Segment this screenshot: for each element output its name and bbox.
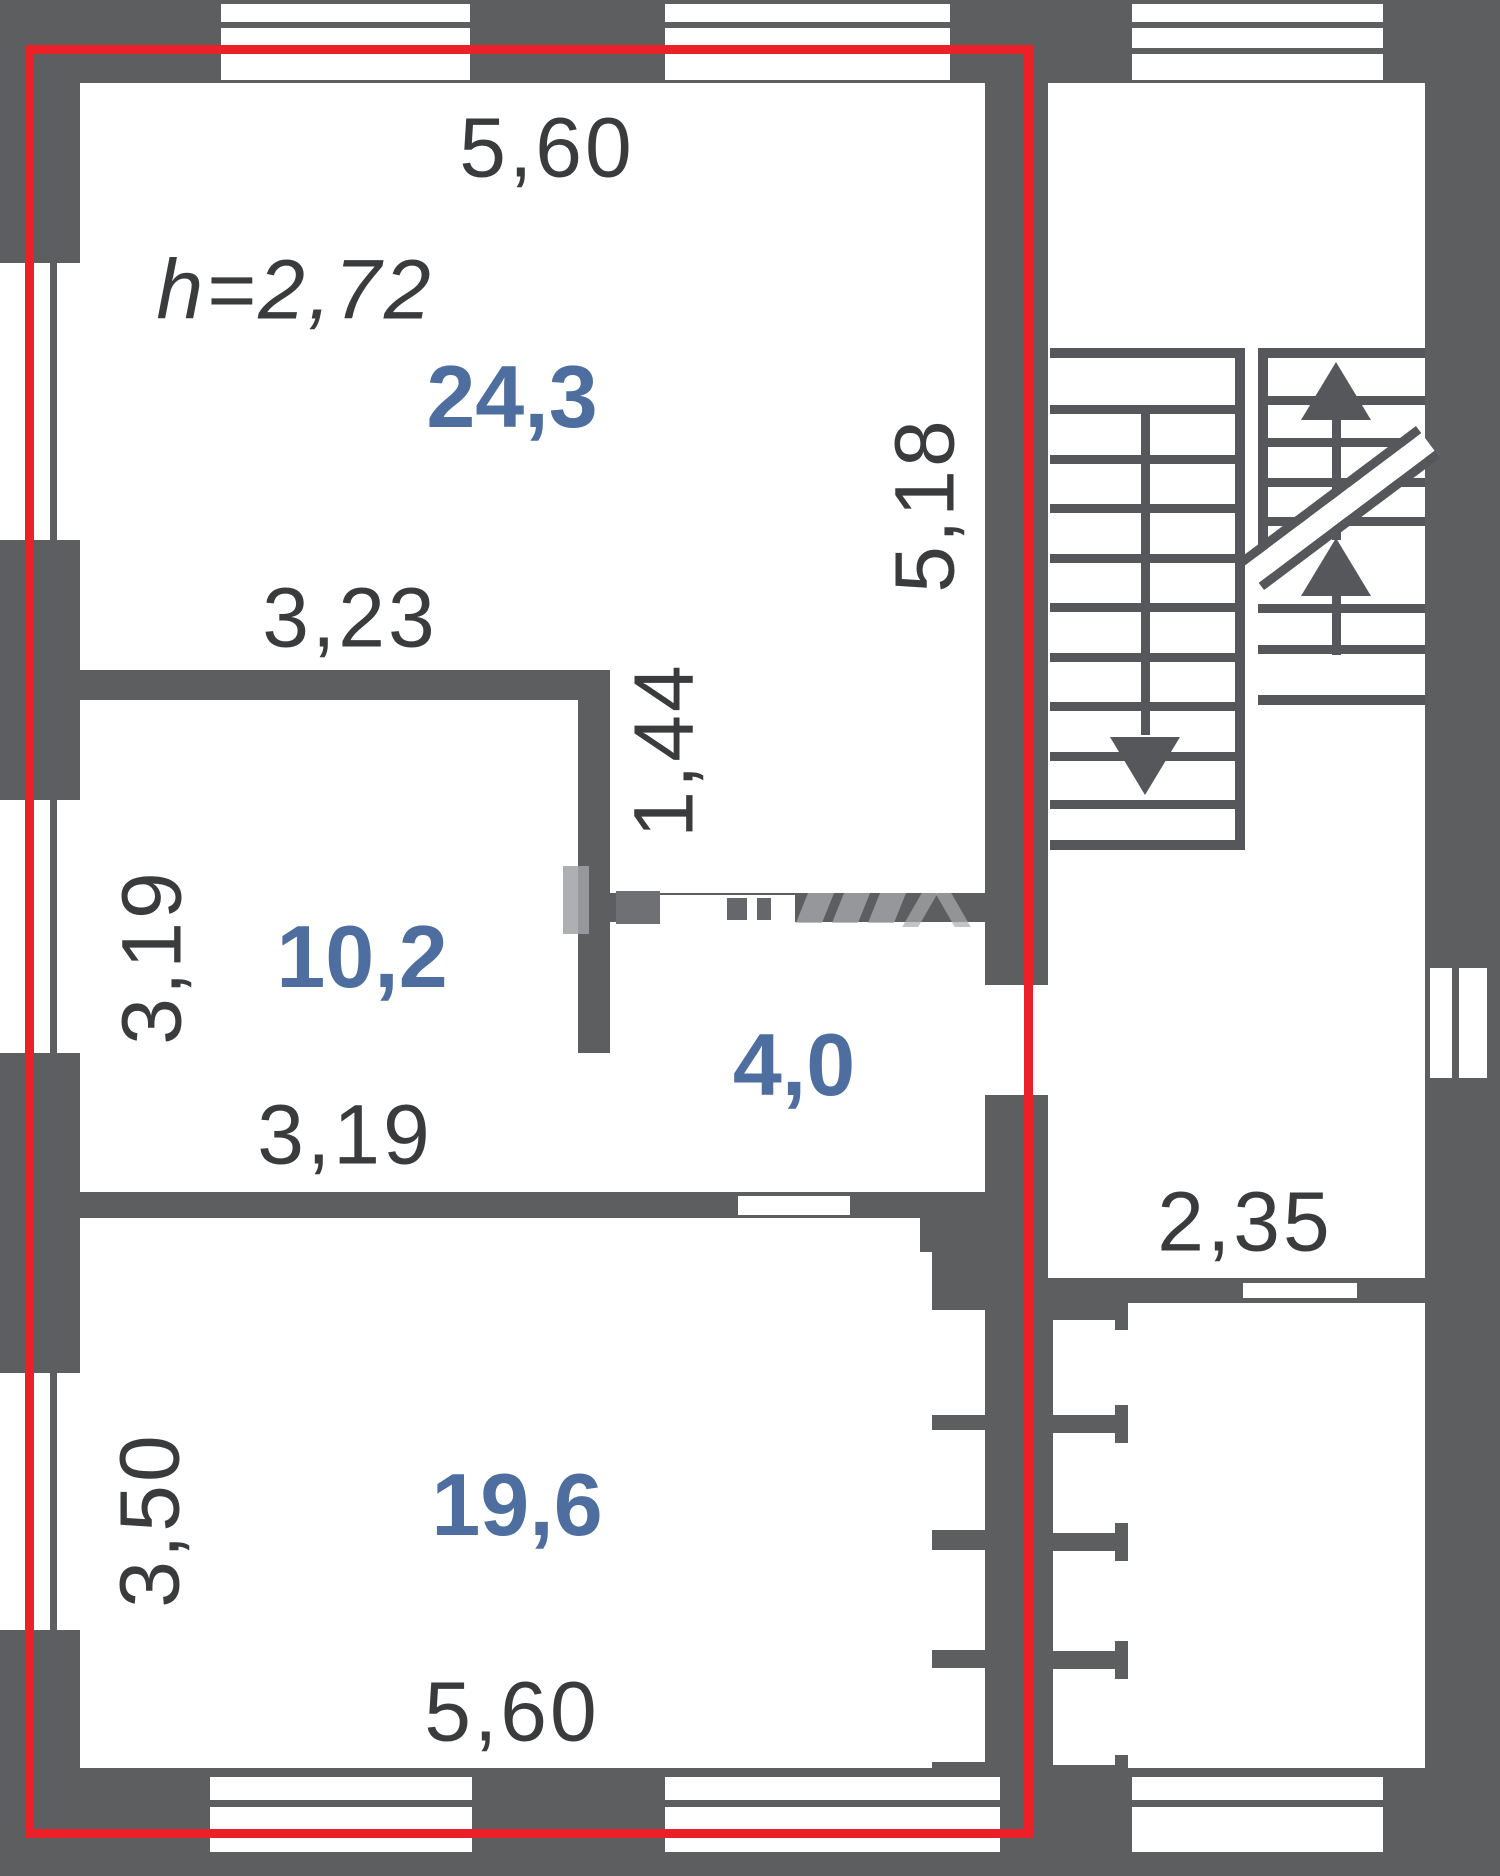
- dim-bottom-width: 5,60: [424, 1664, 600, 1761]
- room-area-living: 24,3: [426, 346, 597, 448]
- window-top-1-frame: [221, 22, 470, 28]
- stair-flight-up-top: [1258, 348, 1425, 358]
- balcony-window-right-4: [1053, 1669, 1115, 1765]
- down-arrow-icon: [1110, 737, 1180, 795]
- dim-bedroom-bottom-width: 3,19: [257, 1087, 433, 1184]
- dim-hall-wall: 1,44: [616, 662, 713, 838]
- dim-bedroom-left-height: 3,19: [104, 869, 201, 1045]
- partition-glass-3: [1115, 1561, 1128, 1641]
- stair-up-arrow-shaft-2: [1332, 594, 1341, 655]
- dim-living-height: 5,18: [877, 417, 974, 593]
- stair-flight-down-top: [1050, 348, 1245, 358]
- door-corridor-room: [1243, 1283, 1357, 1298]
- room-area-hall: 4,0: [733, 1014, 855, 1116]
- stair-tread: [1258, 645, 1425, 654]
- dim-kitchen-left-height: 3,50: [102, 1432, 199, 1608]
- wall-corridor-south: [1045, 1278, 1425, 1303]
- stair-tread: [1050, 800, 1235, 809]
- floor-plan: 5,60 h=2,72 24,3 5,18 3,23 1,44 10,2 3,1…: [0, 0, 1500, 1876]
- partition-glass-2: [1115, 1443, 1128, 1523]
- stair-flight-up-bottom: [1258, 695, 1425, 705]
- dim-corridor-width: 2,35: [1157, 1174, 1333, 1271]
- window-top-3-frame: [1132, 22, 1383, 28]
- partition-glass-1: [1115, 1330, 1128, 1405]
- window-top-2-frame: [665, 22, 950, 28]
- window-right-corridor-frame: [1452, 968, 1459, 1078]
- partition-glass-4: [1115, 1679, 1128, 1755]
- room-area-kitchen: 19,6: [431, 1454, 602, 1556]
- balcony-window-right-2: [1053, 1433, 1115, 1533]
- wall-right: [1425, 0, 1500, 1876]
- dim-top-width: 5,60: [459, 100, 635, 197]
- stair-flight-down-right: [1235, 348, 1245, 850]
- window-top-3-frame2: [1132, 48, 1383, 54]
- room-area-bedroom: 10,2: [276, 906, 447, 1008]
- window-bottom-3: [1132, 1777, 1383, 1852]
- stair-down-arrow-shaft: [1141, 405, 1150, 735]
- stair-flight-down-bottom: [1050, 840, 1245, 850]
- stair-tread: [1258, 604, 1425, 613]
- window-bottom-3-frame: [1132, 1800, 1383, 1807]
- window-top-3: [1132, 4, 1383, 80]
- ceiling-height: h=2,72: [156, 242, 433, 339]
- up-arrow-icon: [1301, 362, 1371, 420]
- balcony-window-right-1: [1053, 1320, 1115, 1415]
- balcony-window-right-3: [1053, 1551, 1115, 1651]
- dim-bedroom-top-width: 3,23: [262, 570, 438, 667]
